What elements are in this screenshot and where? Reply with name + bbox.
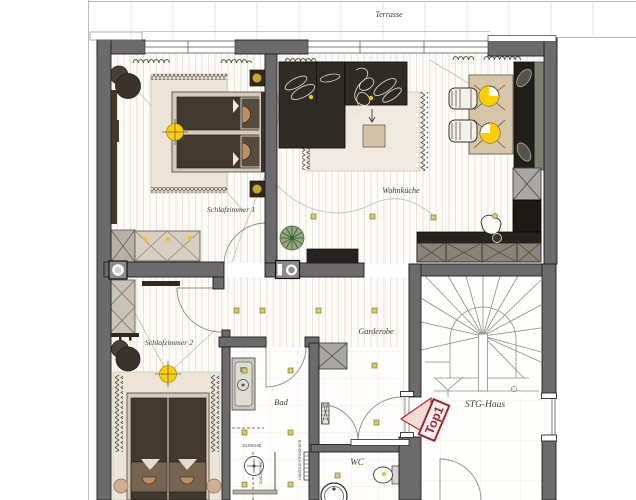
svg-text:WC: WC [350, 457, 364, 467]
svg-text:Wohnküche: Wohnküche [382, 186, 420, 195]
svg-text:STG-Haus: STG-Haus [465, 400, 505, 410]
svg-text:Schlafzimmer 1: Schlafzimmer 1 [207, 205, 255, 214]
svg-text:HANDTUCHTROCKNER: HANDTUCHTROCKNER [298, 439, 302, 480]
svg-text:Schlafzimmer 2: Schlafzimmer 2 [145, 338, 193, 347]
svg-text:Terrasse: Terrasse [375, 10, 403, 19]
svg-text:Bad: Bad [274, 397, 288, 407]
svg-text:DUSCHE: DUSCHE [242, 443, 261, 448]
svg-text:Garderobe: Garderobe [358, 327, 394, 336]
svg-text:DUSCHRINNE: DUSCHRINNE [259, 461, 263, 484]
